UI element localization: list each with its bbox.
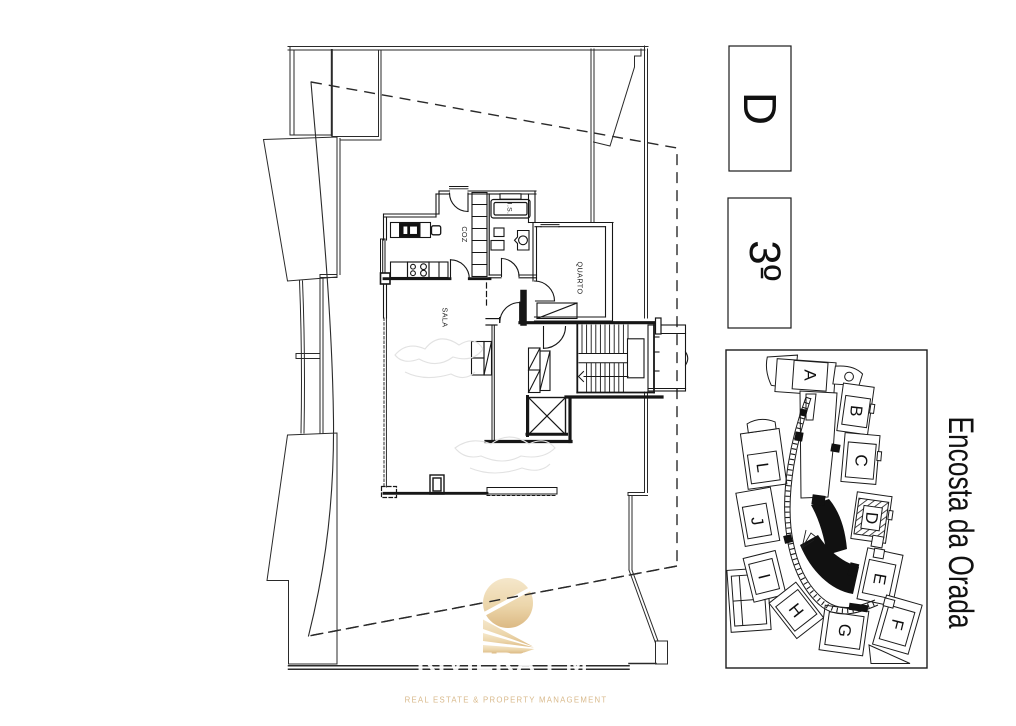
svg-text:C: C: [851, 454, 871, 468]
svg-text:QUARTO: QUARTO: [576, 262, 585, 295]
svg-text:RIVIERA PM: RIVIERA PM: [417, 647, 590, 677]
svg-text:B: B: [846, 404, 866, 417]
svg-text:3º: 3º: [740, 240, 789, 281]
svg-text:D: D: [861, 511, 881, 525]
svg-text:I.S.: I.S.: [506, 203, 513, 214]
svg-text:SALA: SALA: [441, 308, 450, 328]
svg-text:REAL ESTATE & PROPERTY MANAGEM: REAL ESTATE & PROPERTY MANAGEMENT: [405, 696, 608, 705]
svg-text:A: A: [801, 369, 820, 381]
svg-text:D: D: [734, 92, 786, 125]
svg-text:COZ: COZ: [460, 226, 469, 243]
svg-text:Encosta da Orada: Encosta da Orada: [941, 416, 980, 628]
svg-text:G: G: [834, 623, 855, 639]
